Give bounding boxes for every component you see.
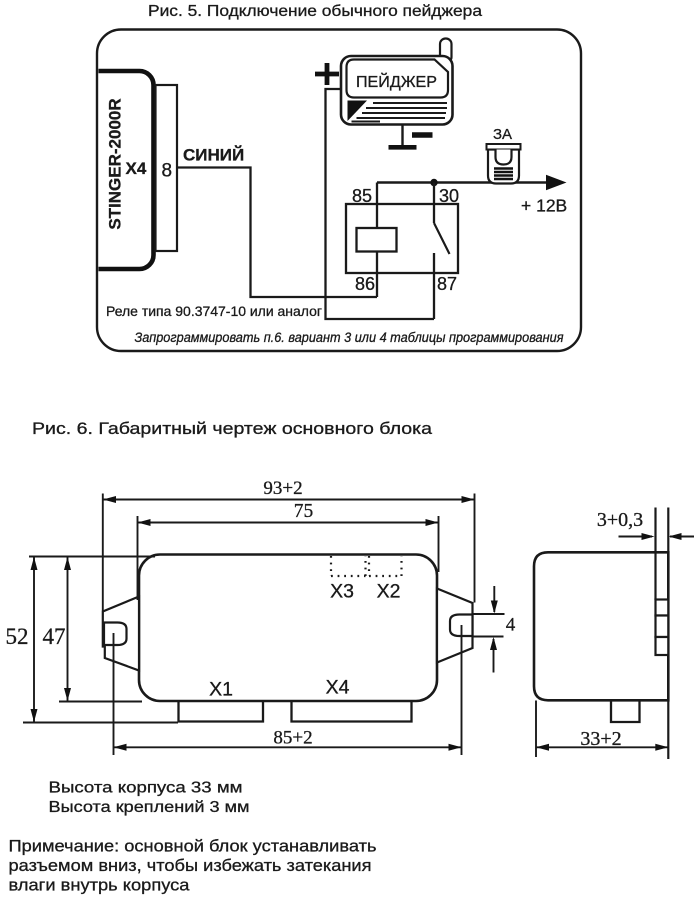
- svg-text:85: 85: [352, 186, 372, 206]
- svg-text:85+2: 85+2: [273, 728, 312, 749]
- svg-text:Рис. 6. Габаритный чертеж осн: Рис. 6. Габаритный чертеж основного блок…: [32, 420, 433, 438]
- svg-text:разъемом вниз, чтобы избежать: разъемом вниз, чтобы избежать затекания: [9, 857, 372, 875]
- svg-text:+ 12В: + 12В: [521, 196, 567, 216]
- svg-text:86: 86: [355, 274, 375, 294]
- svg-text:X3: X3: [330, 581, 354, 603]
- svg-text:STINGER-2000R: STINGER-2000R: [106, 98, 125, 229]
- svg-text:Высота креплений 3 мм: Высота креплений 3 мм: [49, 799, 250, 816]
- svg-text:93+2: 93+2: [263, 478, 302, 499]
- svg-text:X4: X4: [126, 159, 147, 178]
- svg-text:47: 47: [43, 624, 66, 649]
- svg-text:52: 52: [6, 624, 29, 649]
- svg-text:30: 30: [439, 186, 459, 206]
- svg-text:Запрограммировать п.6. вариант: Запрограммировать п.6. вариант 3 или 4 т…: [135, 330, 564, 345]
- svg-text:Реле типа 90.3747-10 или анало: Реле типа 90.3747-10 или аналог: [106, 303, 322, 319]
- svg-text:8: 8: [162, 161, 173, 182]
- svg-text:X1: X1: [209, 679, 233, 701]
- svg-text:СИНИЙ: СИНИЙ: [183, 146, 244, 165]
- svg-text:3+0,3: 3+0,3: [597, 509, 643, 531]
- svg-text:87: 87: [437, 274, 457, 294]
- svg-text:X2: X2: [377, 581, 401, 603]
- svg-text:ПЕЙДЖЕР: ПЕЙДЖЕР: [356, 73, 437, 91]
- svg-text:Высота корпуса 33 мм: Высота корпуса 33 мм: [49, 780, 243, 797]
- svg-text:33+2: 33+2: [580, 728, 621, 750]
- svg-text:75: 75: [294, 501, 314, 522]
- svg-text:ЗА: ЗА: [493, 126, 512, 143]
- svg-text:4: 4: [506, 615, 516, 636]
- svg-text:влаги внутрь корпуса: влаги внутрь корпуса: [9, 877, 191, 895]
- svg-text:X4: X4: [326, 677, 350, 699]
- svg-text:Примечание: основной блок уста: Примечание: основной блок устанавливать: [9, 838, 377, 856]
- svg-text:Рис. 5. Подключение обычного п: Рис. 5. Подключение обычного пейджера: [148, 3, 482, 20]
